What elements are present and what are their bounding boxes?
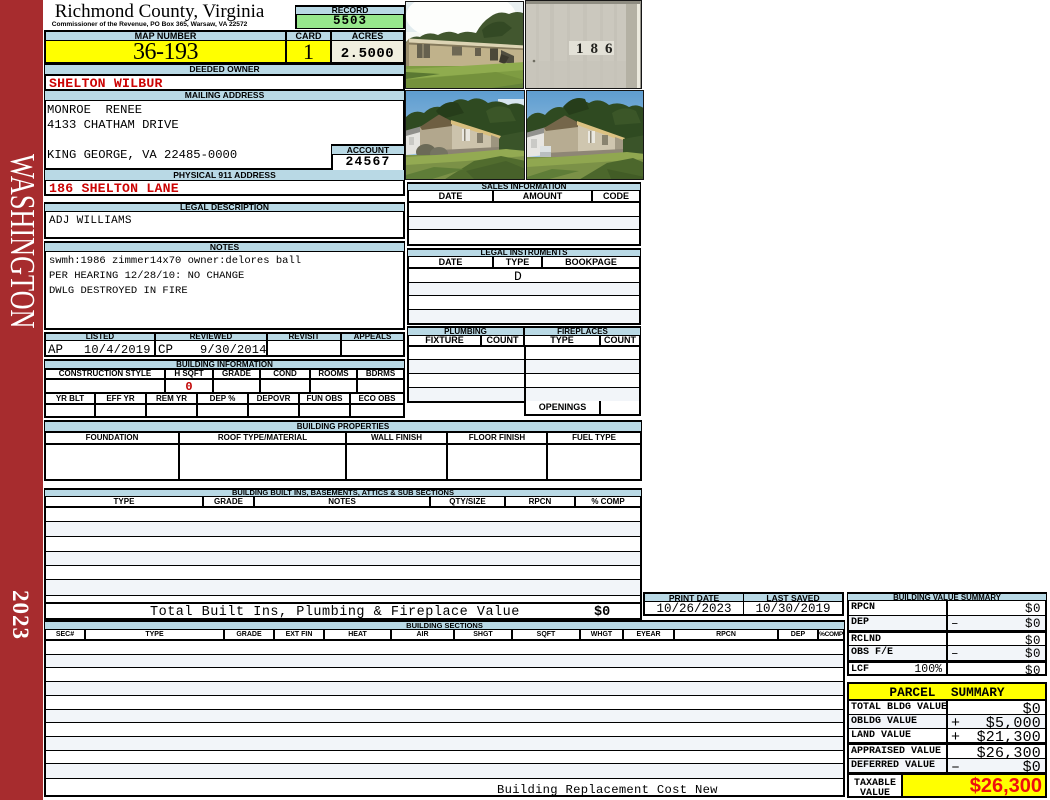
svg-text:186: 186	[576, 41, 620, 57]
